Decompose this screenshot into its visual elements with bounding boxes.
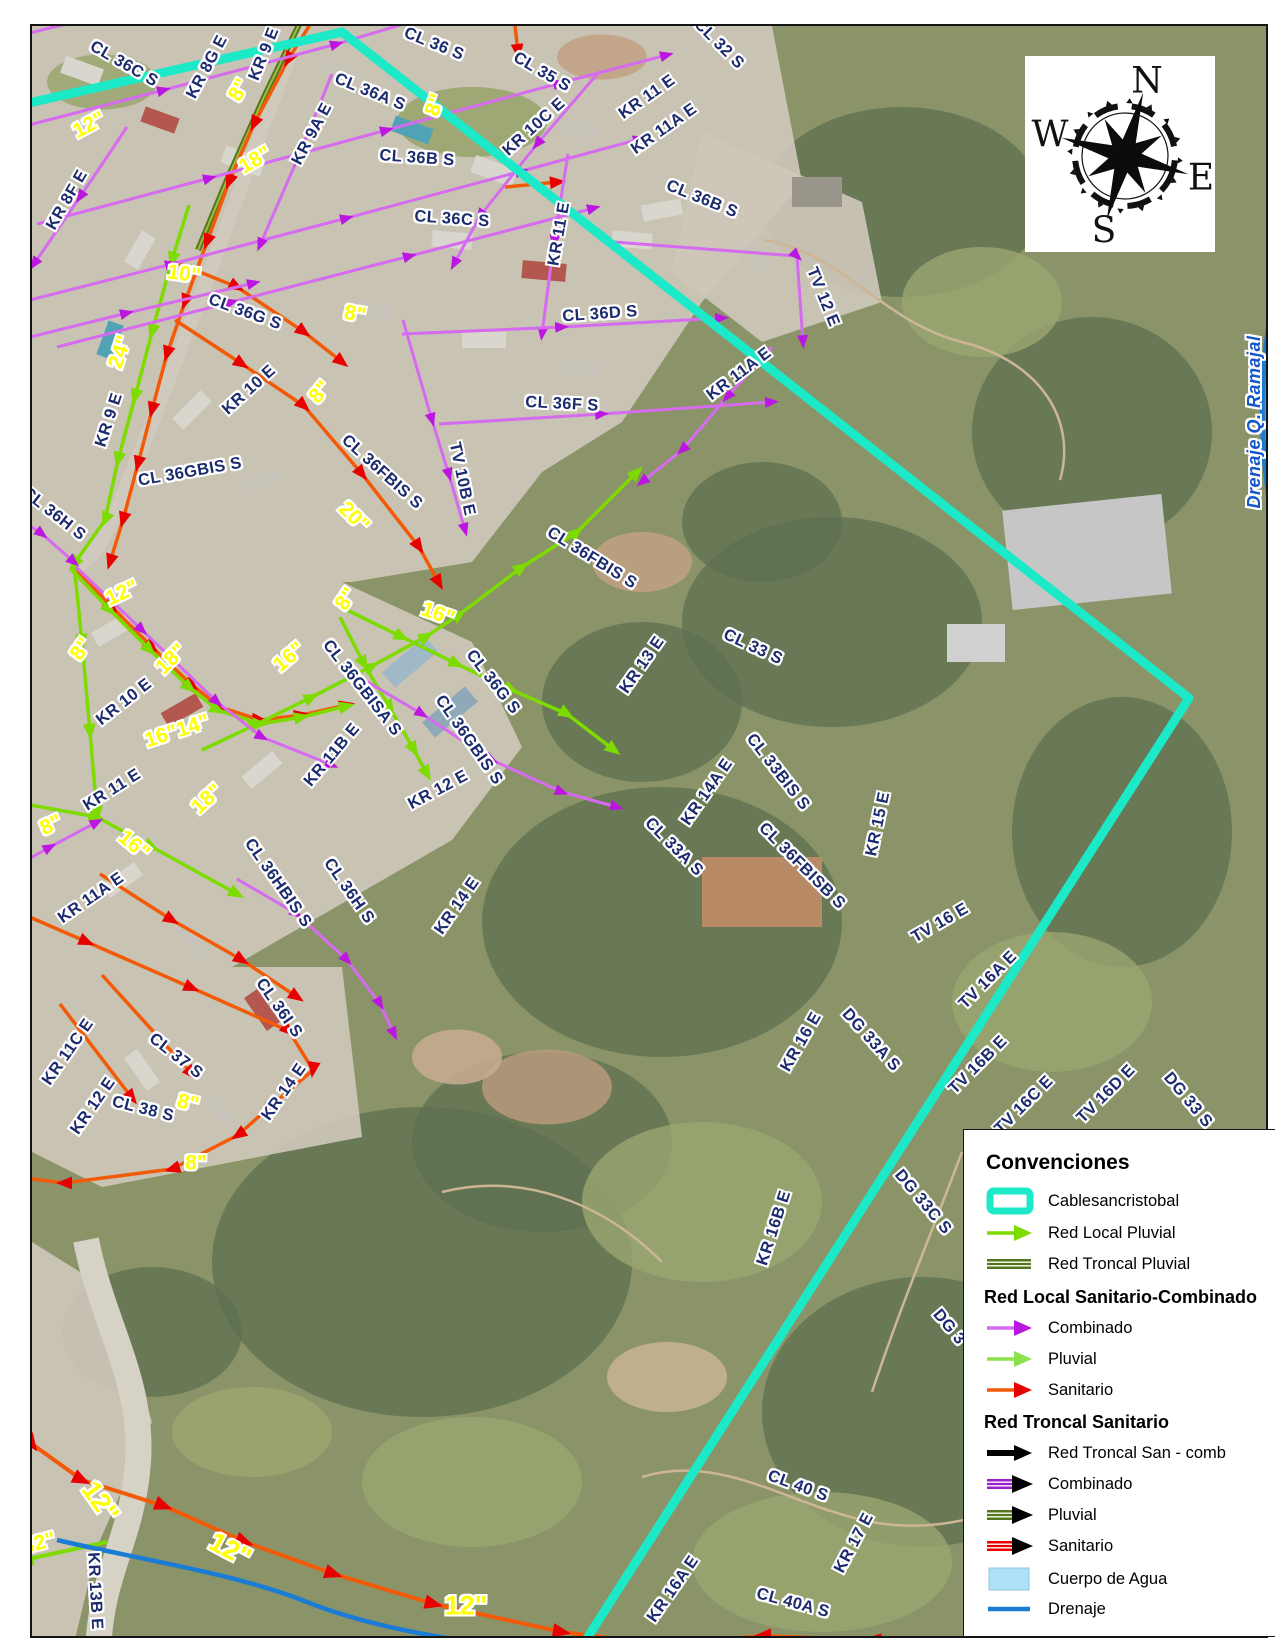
pipe-diameter-label: 8" (185, 1153, 207, 1174)
drainage-label: Drenaje Q. Ramajal (1245, 335, 1263, 508)
legend-swatch-icon (986, 1250, 1034, 1278)
legend-item: Combinado (986, 1313, 1132, 1343)
compass-rose: N E S W (1025, 56, 1215, 252)
legend-item: Red Troncal Pluvial (986, 1249, 1190, 1279)
legend-swatch-icon (986, 1187, 1034, 1215)
legend-swatch-icon (986, 1314, 1034, 1342)
legend-item: Sanitario (986, 1531, 1113, 1561)
legend-item: Cuerpo de Agua (986, 1564, 1167, 1594)
legend-item: Red Troncal San - comb (986, 1438, 1226, 1468)
compass-north-label: N (1131, 61, 1163, 102)
legend-item-label: Red Local Pluvial (1048, 1224, 1176, 1243)
legend-swatch-icon (986, 1595, 1034, 1623)
legend-item-label: Sanitario (1048, 1381, 1113, 1400)
legend-section-header: Red Troncal Sanitario (984, 1407, 1169, 1437)
legend-swatch-icon (986, 1470, 1034, 1498)
legend-item: Drenaje (986, 1594, 1106, 1624)
compass-east-label: E (1188, 158, 1214, 199)
legend-item-label: Pluvial (1048, 1506, 1097, 1525)
legend-item-label: Drenaje (1048, 1600, 1106, 1619)
map-sheet: CL 36C SKR 8G EKR 9 ECL 36 SCL 35 SCL 36… (0, 0, 1275, 1650)
legend-item: Combinado (986, 1469, 1132, 1499)
legend-item: Pluvial (986, 1500, 1097, 1530)
legend-swatch-icon (986, 1532, 1034, 1560)
legend-swatch-icon (986, 1345, 1034, 1373)
legend-item-label: Cablesancristobal (1048, 1192, 1179, 1211)
legend-item-label: Red Troncal Sanitario (984, 1412, 1169, 1433)
street-label: CL 36F S (525, 394, 599, 414)
pipe-diameter-label: 10" (166, 261, 202, 286)
compass-west-label: W (1031, 115, 1068, 156)
legend-item-label: Pluvial (1048, 1350, 1097, 1369)
legend-item-label: Cuerpo de Agua (1048, 1570, 1167, 1589)
pipe-diameter-label: 8" (175, 1090, 201, 1116)
pipe-diameter-label: 12" (445, 1593, 488, 1620)
legend-section-header: Red Local Sanitario-Combinado (984, 1282, 1257, 1312)
legend-item: Sanitario (986, 1375, 1113, 1405)
legend-item-label: Red Troncal San - comb (1048, 1444, 1226, 1463)
legend-title: Convenciones (986, 1151, 1130, 1175)
pipe-diameter-label: 8" (343, 302, 368, 326)
legend-swatch-icon (986, 1565, 1034, 1593)
legend-item-label: Combinado (1048, 1319, 1132, 1338)
legend-item-label: Red Troncal Pluvial (1048, 1255, 1190, 1274)
legend-item: Cablesancristobal (986, 1186, 1179, 1216)
compass-south-label: S (1092, 211, 1117, 252)
legend-item: Red Local Pluvial (986, 1218, 1176, 1248)
legend-swatch-icon (986, 1439, 1034, 1467)
legend-swatch-icon (986, 1219, 1034, 1247)
legend-panel: Convenciones CablesancristobalRed Local … (963, 1129, 1275, 1637)
street-label: KR 13B E (85, 1552, 106, 1630)
legend-item-label: Sanitario (1048, 1537, 1113, 1556)
legend-item-label: Red Local Sanitario-Combinado (984, 1287, 1257, 1308)
legend-swatch-icon (986, 1501, 1034, 1529)
legend-swatch-icon (986, 1376, 1034, 1404)
legend-item: Pluvial (986, 1344, 1097, 1374)
legend-item-label: Combinado (1048, 1475, 1132, 1494)
